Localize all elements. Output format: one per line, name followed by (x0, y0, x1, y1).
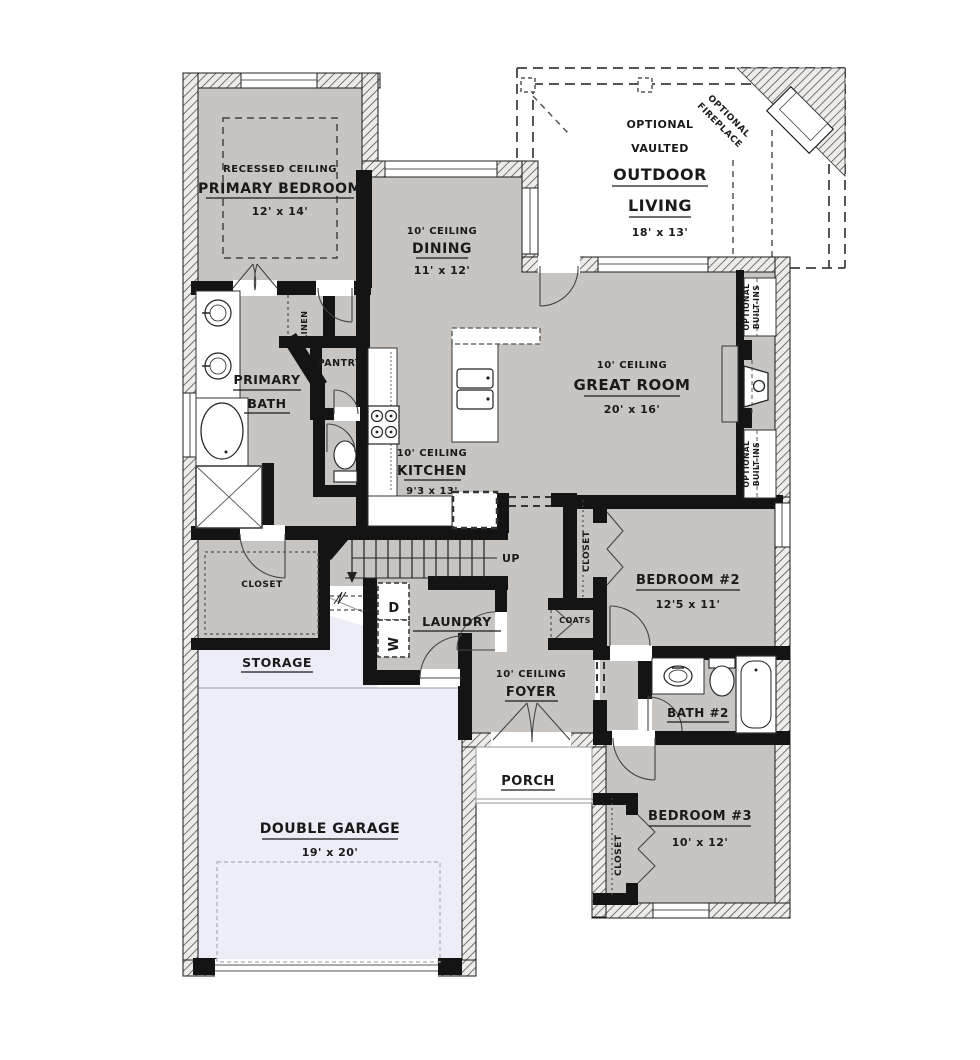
washer-label: W (387, 637, 402, 652)
kitchen-dims: 9'3 x 13' (406, 486, 458, 497)
outdoor-line4: LIVING (628, 196, 692, 215)
foyer-ceiling: 10' CEILING (496, 669, 567, 680)
primary-bath-line2: BATH (247, 396, 286, 411)
bath2-name: BATH #2 (667, 706, 729, 720)
dryer-label: D (388, 601, 399, 616)
bedroom3-closet-name: CLOSET (614, 834, 624, 876)
great-room-name: GREAT ROOM (574, 376, 691, 394)
optional-counter (452, 328, 540, 344)
stairs-up-label: UP (502, 552, 520, 565)
outdoor-dims: 18' x 13' (632, 226, 689, 239)
outdoor-line2: VAULTED (631, 142, 689, 155)
primary-bedroom-note: RECESSED CEILING (223, 164, 337, 175)
primary-bedroom-name: PRIMARY BEDROOM (198, 181, 362, 197)
bedroom2-dims: 12'5 x 11' (656, 598, 721, 611)
porch-name: PORCH (501, 774, 555, 789)
bedroom2-name: BEDROOM #2 (636, 573, 740, 588)
pantry-name: PANTRY (318, 358, 363, 369)
bedroom3-dims: 10' x 12' (672, 836, 729, 849)
primary-bath-line1: PRIMARY (233, 372, 300, 387)
dining-name: DINING (412, 241, 472, 257)
dining-dims: 11' x 12' (414, 264, 471, 277)
optional-cabinet (453, 492, 497, 528)
primary-bedroom-dims: 12' x 14' (252, 205, 309, 218)
floor-plan: RECESSED CEILING PRIMARY BEDROOM 12' x 1… (0, 0, 980, 1060)
bedroom2-closet-name: CLOSET (582, 530, 592, 572)
dining-ceiling: 10' CEILING (407, 226, 478, 237)
foyer-name: FOYER (506, 685, 556, 700)
primary-closet-name: CLOSET (241, 580, 283, 590)
bath2-toilet-bowl (710, 666, 734, 696)
garage-name: DOUBLE GARAGE (260, 821, 400, 837)
kitchen-name: KITCHEN (397, 463, 467, 479)
built-ins-top-line2: BUILT-INS (752, 285, 761, 329)
kitchen-ceiling: 10' CEILING (397, 448, 468, 459)
coats-name: COATS (559, 616, 591, 625)
great-room-ceiling: 10' CEILING (597, 360, 668, 371)
great-room-dims: 20' x 16' (604, 403, 661, 416)
bath2-vanity (652, 658, 704, 694)
outdoor-line1: OPTIONAL (626, 118, 693, 131)
floor-plan-canvas: RECESSED CEILING PRIMARY BEDROOM 12' x 1… (0, 0, 980, 1060)
linen-name: LINEN (300, 311, 309, 340)
bedroom3-name: BEDROOM #3 (648, 809, 752, 824)
toilet-bowl (334, 441, 356, 469)
built-ins-bottom-line2: BUILT-INS (752, 442, 761, 486)
optional-fireplace (737, 68, 845, 176)
kitchen-counter-bottom (368, 496, 452, 526)
garage-dims: 19' x 20' (302, 846, 359, 859)
toilet-tank (334, 471, 357, 482)
built-ins-bottom-line1: OPTIONAL (742, 440, 751, 487)
outdoor-line3: OUTDOOR (613, 165, 707, 184)
built-ins-top-line1: OPTIONAL (742, 283, 751, 330)
laundry-name: LAUNDRY (422, 614, 492, 629)
storage-name: STORAGE (242, 655, 312, 670)
